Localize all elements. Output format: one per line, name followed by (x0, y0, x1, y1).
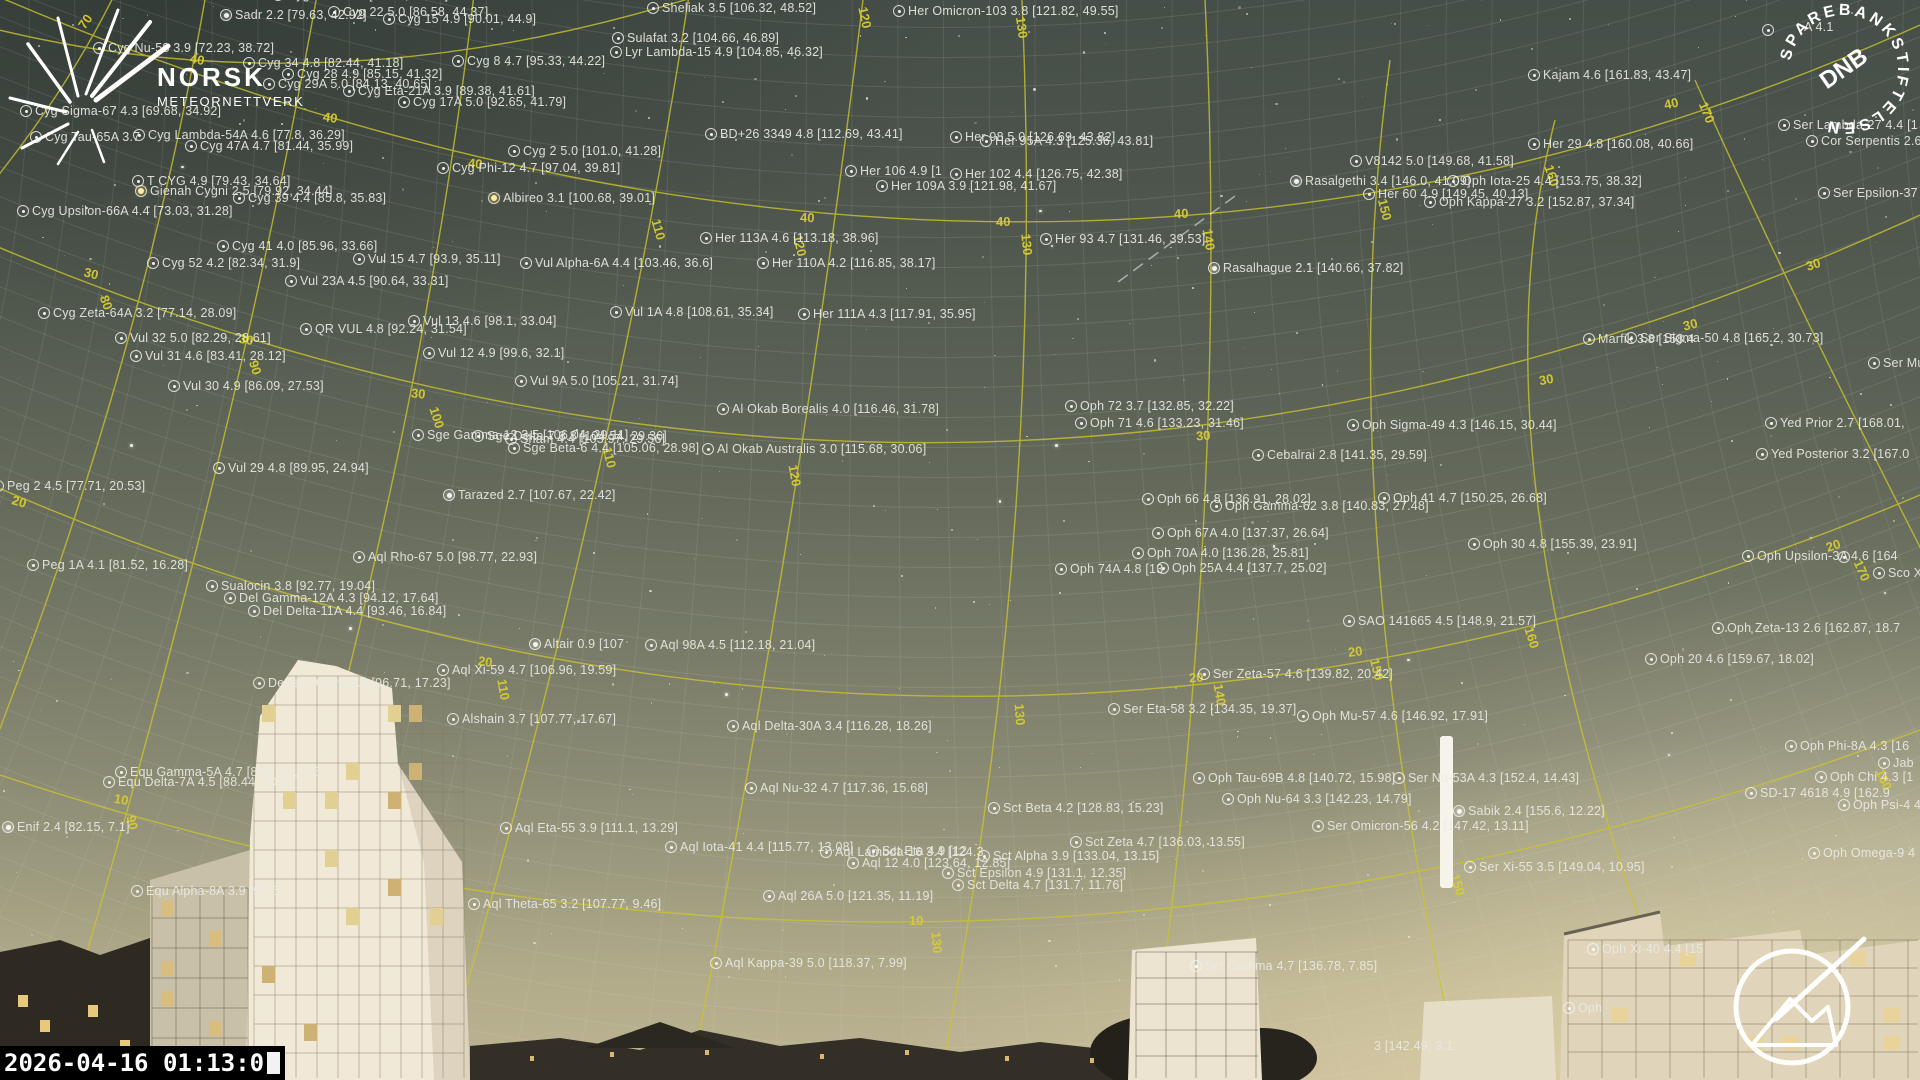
star-label: Al Okab Australis 3.0 [115.68, 30.06] (702, 442, 926, 456)
star-marker-icon (213, 462, 225, 474)
star-label: Cyg 52 4.2 [82.34, 31.9] (147, 256, 300, 270)
star-marker-icon (1453, 805, 1465, 817)
star-label: Aql Nu-32 4.7 [117.36, 15.68] (745, 781, 928, 795)
star-marker-icon (1838, 799, 1850, 811)
star-marker-icon (130, 350, 142, 362)
star-marker-icon (952, 879, 964, 891)
star-label: Cebalrai 2.8 [141.35, 29.59] (1252, 448, 1427, 462)
star-label: Albireo 3.1 [100.68, 39.01] (488, 191, 655, 205)
star-marker-icon (893, 5, 905, 17)
star-marker-icon (1070, 836, 1082, 848)
star-marker-icon (717, 403, 729, 415)
sponsor-logo-sparebankstiftelsen-dnb: SPAREBANKSTIFTELSEN DNB (1768, 0, 1920, 144)
star-label: Oph Omega-9 4 (1808, 846, 1915, 860)
star-label: Oph 71 4.6 [133.23, 31.46] (1075, 416, 1244, 430)
star-marker-icon (645, 639, 657, 651)
star-label: Oph Sigma-49 4.3 [146.15, 30.44] (1347, 418, 1557, 432)
star-label: Peg 1A 4.1 [81.52, 16.28] (27, 558, 188, 572)
star-marker-icon (233, 192, 245, 204)
star-marker-icon (1625, 332, 1637, 344)
star-label: Oph Kappa-27 3.2 [152.87, 37.34] (1424, 195, 1634, 209)
star-label: Sge Beta-6 4.4 [105.06, 28.98] (508, 441, 699, 455)
star-marker-icon (1785, 740, 1797, 752)
star-label: Her 111A 4.3 [117.91, 35.95] (798, 307, 976, 321)
star-label: Cyg 17A 5.0 [92.65, 41.79] (398, 95, 566, 109)
star-marker-icon (383, 13, 395, 25)
star-label: Vul 9A 5.0 [105.21, 31.74] (515, 374, 679, 388)
star-label: Sabik 2.4 [155.6, 12.22] (1453, 804, 1605, 818)
star-label: Enif 2.4 [82.15, 7.1] (2, 820, 130, 834)
star-label: Jab (1878, 756, 1914, 770)
star-label: Her Omicron-103 3.8 [121.82, 49.55] (893, 4, 1119, 18)
star-marker-icon (437, 664, 449, 676)
star-label: Aql Kappa-39 5.0 [118.37, 7.99] (710, 956, 907, 970)
star-marker-icon (1152, 527, 1164, 539)
star-label: Oph 20 4.6 [159.67, 18.02] (1645, 652, 1814, 666)
star-label: Her 29 4.8 [160.08, 40.66] (1528, 137, 1693, 151)
star-label: Aql 26A 5.0 [121.35, 11.19] (763, 889, 933, 903)
star-label: Vul 23A 4.5 [90.64, 33.31] (285, 274, 449, 288)
star-marker-icon (1868, 357, 1880, 369)
star-label: 3 [142.49, 3.1 (1374, 1039, 1453, 1053)
timestamp: 2026-04-16 01:13:0 (0, 1046, 285, 1080)
star-marker-icon (1297, 710, 1309, 722)
star-label: Sct Beta 4.2 [128.83, 15.23] (988, 801, 1164, 815)
star-marker-icon (253, 677, 265, 689)
star-marker-icon (1193, 772, 1205, 784)
star-marker-icon (1468, 538, 1480, 550)
star-label: Oph Tau-69B 4.8 [140.72, 15.98] (1193, 771, 1395, 785)
star-marker-icon (612, 32, 624, 44)
star-label: Altair 0.9 [107 (529, 637, 624, 651)
norsk-meteornettverk-logo: NORSK METEORNETTVERK (0, 0, 360, 190)
star-marker-icon (1424, 196, 1436, 208)
star-label: Her 109A 3.9 [121.98, 41.67] (876, 179, 1056, 193)
star-label: Ser Omicron-56 4.2 [147.42, 13.11] (1312, 819, 1529, 833)
star-marker-icon (1645, 653, 1657, 665)
star-marker-icon (0, 480, 4, 492)
star-label: Rasalgethi 3.4 [146.0, 41.09] (1290, 174, 1471, 188)
star-label: Her 95A 4.3 [125.36, 43.81] (980, 134, 1153, 148)
star-label: Vul 12 4.9 [99.6, 32.1] (423, 346, 564, 360)
star-label: Sheliak 3.5 [106.32, 48.52] (647, 1, 816, 15)
star-marker-icon (876, 180, 888, 192)
star-marker-icon (1312, 820, 1324, 832)
star-marker-icon (131, 885, 143, 897)
star-marker-icon (1765, 417, 1777, 429)
star-marker-icon (610, 306, 622, 318)
star-label: Her 93 4.7 [131.46, 39.53] (1040, 232, 1205, 246)
star-marker-icon (1252, 449, 1264, 461)
star-marker-icon (1712, 622, 1724, 634)
star-label: Oph 70A 4.0 [136.28, 25.81] (1132, 546, 1309, 560)
star-marker-icon (224, 592, 236, 604)
star-marker-icon (702, 443, 714, 455)
star-marker-icon (1756, 448, 1768, 460)
star-label: Deneb Dulfim 4.0 [96.71, 17.23] (253, 676, 451, 690)
star-marker-icon (763, 890, 775, 902)
star-label: Oph 67A 4.0 [137.37, 26.64] (1152, 526, 1329, 540)
star-marker-icon (1393, 772, 1405, 784)
star-label: Oph Psi-4 4. (1838, 798, 1920, 812)
star-label: Cyg 39 4.4 [85.8, 35.83] (233, 191, 386, 205)
star-marker-icon (1528, 138, 1540, 150)
star-marker-icon (1583, 333, 1595, 345)
star-marker-icon (1742, 550, 1754, 562)
star-label: Aql Xi-59 4.7 [106.96, 19.59] (437, 663, 616, 677)
meteornettverk-station-logo (1712, 927, 1882, 1080)
star-marker-icon (1208, 262, 1220, 274)
star-marker-icon (508, 145, 520, 157)
star-marker-icon (447, 713, 459, 725)
star-label: Aql Delta-30A 3.4 [116.28, 18.26] (727, 719, 932, 733)
star-marker-icon (757, 257, 769, 269)
star-marker-icon (27, 559, 39, 571)
star-marker-icon (1815, 771, 1827, 783)
timestamp-text: 2026-04-16 01:13:0 (4, 1049, 264, 1077)
star-marker-icon (38, 307, 50, 319)
star-label: Oph Xi-40 4.4 [15 (1587, 942, 1703, 956)
norsk-logo-title: NORSK (157, 62, 266, 93)
star-label: Vul 32 5.0 [82.29, 28.61] (115, 331, 271, 345)
star-label: Sct Delta 4.7 [131.7, 11.76] (952, 878, 1123, 892)
star-label: Oph Chi 4.3 [1 (1815, 770, 1913, 784)
star-label: Peg 2 4.5 [77.71, 20.53] (0, 479, 145, 493)
star-label: Sct Zeta 4.7 [136.03, 13.55] (1070, 835, 1245, 849)
star-label: Yed Posterior 3.2 [167.0 (1756, 447, 1909, 461)
star-label (1838, 551, 1850, 563)
star-label: Tarazed 2.7 [107.67, 22.42] (443, 488, 616, 502)
star-marker-icon (1818, 187, 1830, 199)
star-label: Ser Xi-55 3.5 [149.04, 10.95] (1464, 860, 1645, 874)
star-marker-icon (847, 857, 859, 869)
star-marker-icon (1528, 69, 1540, 81)
star-label: Cyg 8 4.7 [95.33, 44.22] (452, 54, 605, 68)
star-marker-icon (1190, 960, 1202, 972)
star-marker-icon (508, 442, 520, 454)
star-marker-icon (820, 846, 832, 858)
star-marker-icon (1745, 787, 1757, 799)
star-label: Lyr Lambda-15 4.9 [104.85, 46.32] (610, 45, 823, 59)
star-marker-icon (423, 347, 435, 359)
star-marker-icon (206, 580, 218, 592)
star-label: Vul 31 4.6 [83.41, 28.12] (130, 349, 286, 363)
star-marker-icon (217, 240, 229, 252)
star-label: Cyg Zeta-64A 3.2 [77.14, 28.09] (38, 306, 236, 320)
star-marker-icon (520, 257, 532, 269)
star-label: Oph Nu-64 3.3 [142.23, 14.79] (1222, 792, 1412, 806)
star-label: Oph Upsilon-3A 4.6 [164 (1742, 549, 1898, 563)
star-label: Vul 30 4.9 [86.09, 27.53] (168, 379, 324, 393)
timestamp-cursor (267, 1052, 280, 1074)
star-label: Ser Eta-58 3.2 [134.35, 19.37] (1108, 702, 1296, 716)
star-label: Oph Zeta-13 2.6 [162.87, 18.7 (1712, 621, 1900, 635)
star-label: Ser Nu-53A 4.3 [152.4, 14.43] (1393, 771, 1579, 785)
star-marker-icon (705, 128, 717, 140)
star-label: Yed Prior 2.7 [168.01, (1765, 416, 1905, 430)
star-marker-icon (488, 192, 500, 204)
star-marker-icon (665, 841, 677, 853)
sponsor-center-text: DNB (1815, 43, 1873, 95)
star-label: Equ Delta-7A 4.5 [88.44, 10.92] (103, 775, 299, 789)
star-label: Del Delta-11A 4.4 [93.46, 16.84] (248, 604, 446, 618)
star-marker-icon (950, 131, 962, 143)
norsk-logo-subtitle: METEORNETTVERK (157, 94, 304, 109)
star-marker-icon (168, 380, 180, 392)
star-marker-icon (798, 308, 810, 320)
star-label: Alshain 3.7 [107.77, 17.67] (447, 712, 616, 726)
star-label: Del Gamma-12A 4.3 [94.12, 17.64] (224, 591, 439, 605)
star-label: Oph (1563, 1001, 1602, 1015)
star-label: Cyg Phi-12 4.7 [97.04, 39.81] (437, 161, 620, 175)
star-label: Oph 74A 4.8 [13 (1055, 562, 1163, 576)
star-marker-icon (1040, 233, 1052, 245)
star-label: Aql Rho-67 5.0 [98.77, 22.93] (353, 550, 537, 564)
star-label: Cyg 15 4.9 [90.01, 44.9] (383, 12, 536, 26)
star-label: Ser Epsilon-37 3.7 [ (1818, 186, 1920, 200)
star-label: Her 106 4.9 [1 (845, 164, 942, 178)
star-marker-icon (1838, 551, 1850, 563)
star-marker-icon (17, 205, 29, 217)
star-label: SAO 141665 4.5 [148.9, 21.57] (1343, 614, 1536, 628)
star-label: Oph 72 3.7 [132.85, 32.22] (1065, 399, 1234, 413)
star-label: Oph Phi-8A 4.3 [16 (1785, 739, 1909, 753)
star-marker-icon (353, 551, 365, 563)
star-marker-icon (285, 275, 297, 287)
star-marker-icon (353, 253, 365, 265)
star-marker-icon (845, 165, 857, 177)
star-marker-icon (1157, 562, 1169, 574)
star-marker-icon (443, 489, 455, 501)
star-marker-icon (710, 957, 722, 969)
star-marker-icon (1108, 703, 1120, 715)
star-label: Her 110A 4.2 [116.85, 38.17] (757, 256, 936, 270)
star-label: Kajam 4.6 [161.83, 43.47] (1528, 68, 1691, 82)
star-label: Cyg Upsilon-66A 4.4 [73.03, 31.28] (17, 204, 233, 218)
star-label: Sulafat 3.2 [104.66, 46.89] (612, 31, 779, 45)
star-marker-icon (1222, 793, 1234, 805)
star-marker-icon (452, 55, 464, 67)
star-marker-icon (529, 638, 541, 650)
star-marker-icon (1210, 500, 1222, 512)
star-marker-icon (1347, 419, 1359, 431)
star-marker-icon (248, 605, 260, 617)
star-marker-icon (1808, 847, 1820, 859)
star-marker-icon (1878, 757, 1890, 769)
star-label: Al Okab Borealis 4.0 [116.46, 31.78] (717, 402, 939, 416)
star-marker-icon (468, 898, 480, 910)
star-label: Ser Zeta-57 4.6 [139.82, 20.42] (1198, 667, 1393, 681)
star-marker-icon (500, 822, 512, 834)
star-marker-icon (1447, 175, 1459, 187)
star-marker-icon (515, 375, 527, 387)
star-marker-icon (700, 232, 712, 244)
star-marker-icon (745, 782, 757, 794)
star-marker-icon (1290, 175, 1302, 187)
star-marker-icon (1132, 547, 1144, 559)
star-label: Sct Gamma 4.7 [136.78, 7.85] (1190, 959, 1377, 973)
star-marker-icon (398, 96, 410, 108)
star-label: Vul Alpha-6A 4.4 [103.46, 36.6] (520, 256, 713, 270)
star-marker-icon (1464, 861, 1476, 873)
star-marker-icon (412, 429, 424, 441)
star-label: Aql 98A 4.5 [112.18, 21.04] (645, 638, 815, 652)
star-marker-icon (647, 2, 659, 14)
star-label: BD+26 3349 4.8 [112.69, 43.41] (705, 127, 903, 141)
star-marker-icon (1055, 563, 1067, 575)
star-label: Oph Mu-57 4.6 [146.92, 17.91] (1297, 709, 1488, 723)
star-label: QR VUL 4.8 [92.24, 31.54] (300, 322, 467, 336)
star-marker-icon (437, 162, 449, 174)
star-label: Ser Sigma-50 4.8 [165.2, 30.73] (1625, 331, 1823, 345)
star-marker-icon (1198, 668, 1210, 680)
star-marker-icon (2, 821, 14, 833)
star-marker-icon (103, 776, 115, 788)
star-marker-icon (300, 323, 312, 335)
star-label: Rasalhague 2.1 [140.66, 37.82] (1208, 261, 1403, 275)
star-label: Cyg 41 4.0 [85.96, 33.66] (217, 239, 377, 253)
star-marker-icon (472, 430, 484, 442)
star-label: Aql Eta-55 3.9 [111.1, 13.29] (500, 821, 678, 835)
star-label: Oph 30 4.8 [155.39, 23.91] (1468, 537, 1637, 551)
star-marker-icon (980, 135, 992, 147)
star-marker-icon (1142, 493, 1154, 505)
star-label: Vul 15 4.7 [93.9, 35.11] (353, 252, 501, 266)
star-marker-icon (1065, 400, 1077, 412)
star-marker-icon (1873, 567, 1885, 579)
star-label: Oph Iota-25 4.4 [153.75, 38.32] (1447, 174, 1642, 188)
star-marker-icon (1587, 943, 1599, 955)
star-label: Aql Theta-65 3.2 [107.77, 9.46] (468, 897, 661, 911)
star-label: Equ Alpha-8A 3.9 [90.6 (131, 884, 278, 898)
star-marker-icon (1563, 1002, 1575, 1014)
star-label: Her 113A 4.6 [113.18, 38.96] (700, 231, 879, 245)
star-marker-icon (727, 720, 739, 732)
star-label: V8142 5.0 [149.68, 41.58] (1350, 154, 1514, 168)
star-marker-icon (147, 257, 159, 269)
star-marker-icon (610, 46, 622, 58)
star-label: Cyg 2 5.0 [101.0, 41.28] (508, 144, 661, 158)
star-label: Oph 25A 4.4 [137.7, 25.02] (1157, 561, 1327, 575)
star-label: Ser Mu-32 4.3 (1868, 356, 1920, 370)
star-marker-icon (1363, 188, 1375, 200)
star-label: Vul 1A 4.8 [108.61, 35.34] (610, 305, 774, 319)
star-marker-icon (115, 332, 127, 344)
star-label: Vul 29 4.8 [89.95, 24.94] (213, 461, 369, 475)
star-label: Oph Gamma-62 3.8 [140.83, 27.48] (1210, 499, 1429, 513)
star-marker-icon (1343, 615, 1355, 627)
star-marker-icon (1075, 417, 1087, 429)
star-marker-icon (988, 802, 1000, 814)
allsky-camera-view: 7040404040404040303030303030302020202020… (0, 0, 1920, 1080)
star-marker-icon (1350, 155, 1362, 167)
star-label: Sco Xi 4.2 (1873, 566, 1920, 580)
